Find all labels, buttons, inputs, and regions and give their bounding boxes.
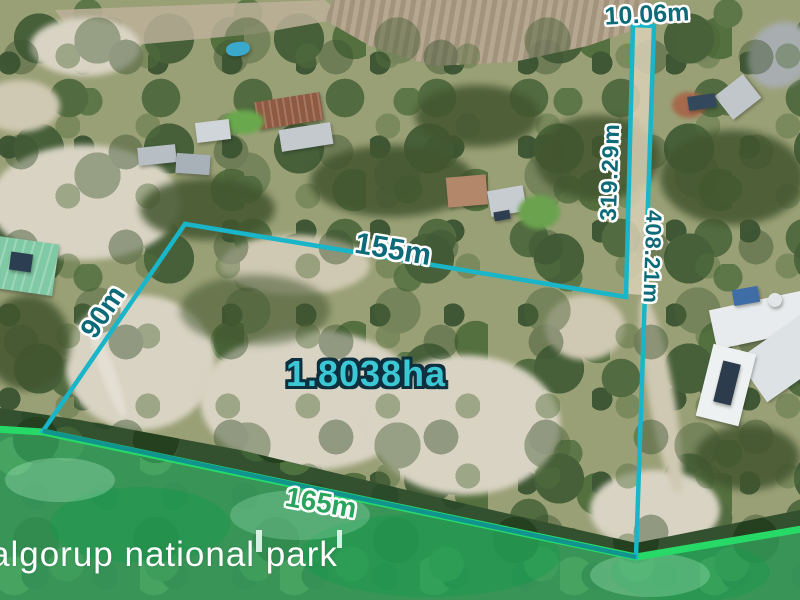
park-tint-light bbox=[590, 553, 710, 597]
boundary-overlay bbox=[0, 0, 800, 600]
park-tint-light bbox=[5, 458, 115, 502]
fence-post bbox=[256, 530, 262, 552]
aerial-photo: 10.06m 319.29m 408.21m 155m 90m 165m 1.8… bbox=[0, 0, 800, 600]
fence-post bbox=[337, 530, 342, 548]
